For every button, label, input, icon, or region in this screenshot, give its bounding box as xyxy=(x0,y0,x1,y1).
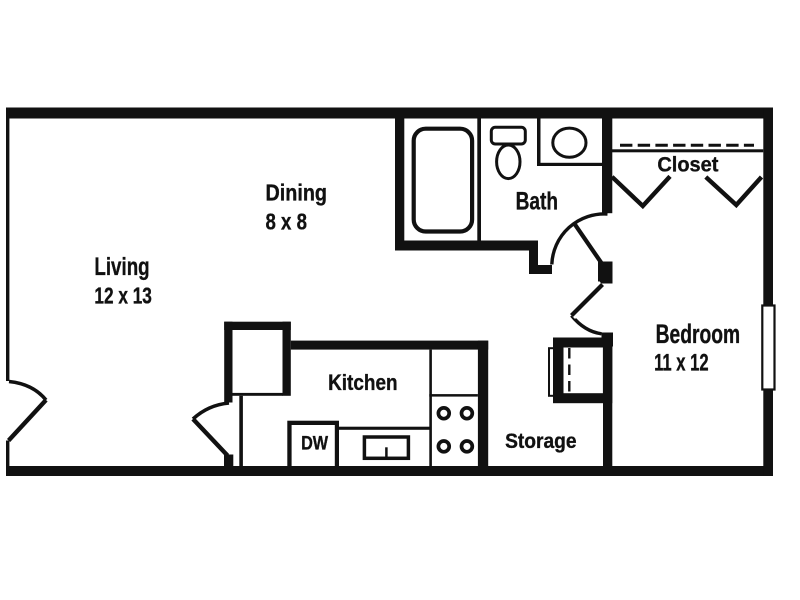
svg-text:Kitchen: Kitchen xyxy=(328,370,398,395)
svg-text:8 x 8: 8 x 8 xyxy=(266,209,308,235)
svg-text:Bedroom: Bedroom xyxy=(656,319,741,349)
svg-text:Dining: Dining xyxy=(266,179,328,205)
svg-text:Closet: Closet xyxy=(657,153,718,177)
svg-text:Storage: Storage xyxy=(505,429,577,453)
svg-text:DW: DW xyxy=(301,434,328,455)
svg-text:12 x 13: 12 x 13 xyxy=(94,282,151,308)
svg-text:Living: Living xyxy=(94,253,149,281)
svg-text:Bath: Bath xyxy=(516,187,559,215)
svg-text:11 x 12: 11 x 12 xyxy=(654,349,709,376)
